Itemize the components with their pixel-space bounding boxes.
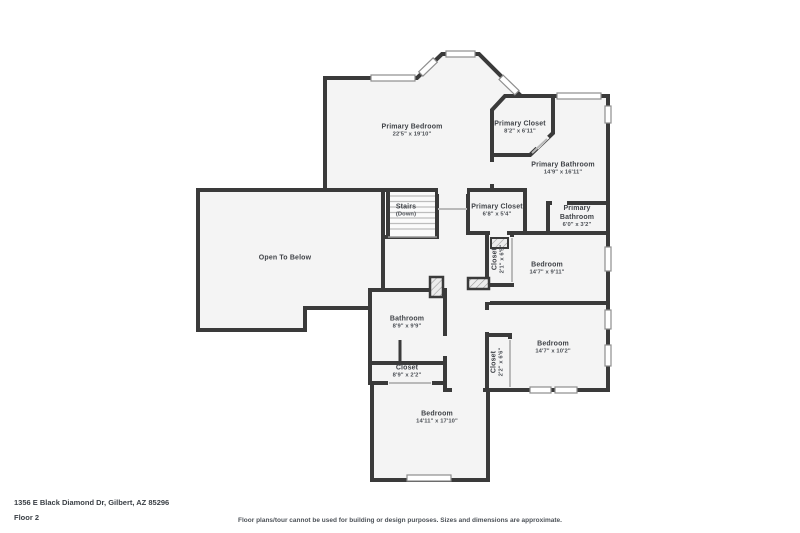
floor-plan-page: Primary Bedroom 22'5" x 19'10" Primary C… [0, 0, 800, 533]
room-shape-bathroom [370, 290, 445, 363]
property-address: 1356 E Black Diamond Dr, Gilbert, AZ 852… [14, 498, 169, 507]
stairs-graphic [388, 190, 437, 238]
room-shape-primary-closet-hall [468, 190, 525, 233]
floor-plan-drawing [0, 0, 800, 533]
disclaimer-text: Floor plans/tour cannot be used for buil… [0, 517, 800, 524]
room-shape-open-to-below [198, 190, 383, 330]
room-shape-primary-bathroom-wc [548, 203, 608, 235]
room-shape-closet-bedroom2 [487, 335, 510, 390]
room-shape-bedroom3 [372, 383, 488, 480]
